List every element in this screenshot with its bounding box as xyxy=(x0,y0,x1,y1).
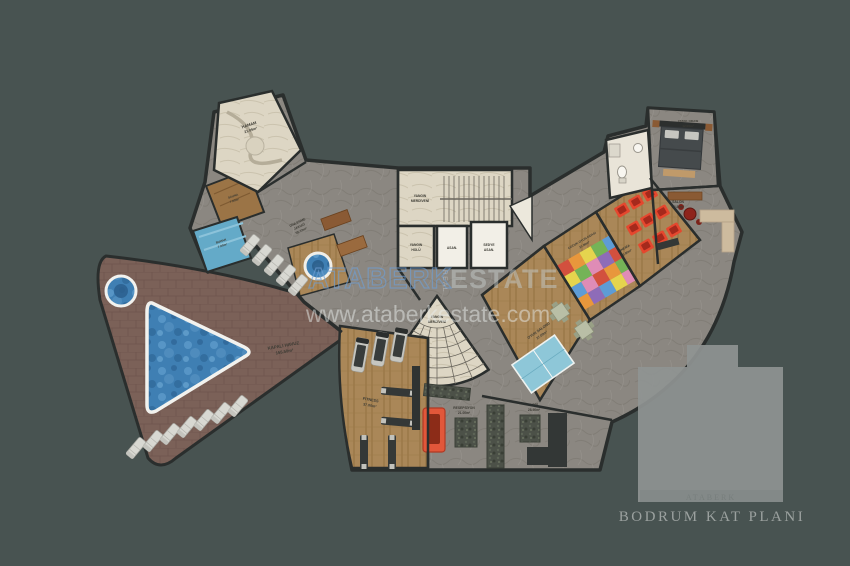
title-block: ATABERK BODRUM KAT PLANI xyxy=(619,345,805,525)
label-resepsiyon-name: RESEPSİYON xyxy=(453,406,475,410)
label-lobi-area: 28.90m² xyxy=(528,408,541,412)
floor-plan-canvas: KAPALI HAVUZ 155.50m² SAUNA 7.00m² BUHAR… xyxy=(0,0,850,566)
jacuzzi-center xyxy=(114,284,128,298)
label-fire-hall-1: YANGIN xyxy=(410,243,423,247)
hamam-center-stone xyxy=(246,137,264,155)
sofa-return xyxy=(722,222,734,252)
watermark-brand-secondary: ESTATE xyxy=(450,264,559,294)
sink xyxy=(634,144,643,153)
shower-tray xyxy=(609,144,620,157)
lobby-sofa-vertical xyxy=(548,413,567,467)
room-label-stretcher: SEDYE ASAN. xyxy=(483,243,495,252)
label-fire-top-2: MERDİVENİ xyxy=(411,199,429,203)
toilet xyxy=(618,166,627,178)
round-table xyxy=(684,208,696,220)
sideboard xyxy=(668,192,702,200)
basement-floor-plan: KAPALI HAVUZ 155.50m² SAUNA 7.00m² BUHAR… xyxy=(0,0,850,566)
lobby-planter xyxy=(520,415,540,442)
building-silhouette xyxy=(638,345,783,502)
label-salon-name: SALON xyxy=(672,200,684,204)
watermark-website: www.ataberkestate.com xyxy=(305,301,550,327)
silhouette-logo-caption: ATABERK xyxy=(686,493,736,502)
sofa xyxy=(700,210,734,222)
label-fire-hall-2: HOLÜ xyxy=(411,248,421,252)
apartment-bathroom xyxy=(606,130,652,198)
planter-square xyxy=(455,418,477,447)
watermark-brand-primary: ATABERK xyxy=(308,263,452,295)
lobby-sofa-horizontal xyxy=(527,447,550,465)
fire-hall xyxy=(398,226,434,268)
label-elevator: ASAN. xyxy=(447,246,457,250)
label-stretcher-1: SEDYE xyxy=(483,243,495,247)
planter-long xyxy=(487,405,504,468)
toilet-tank xyxy=(619,178,626,183)
label-fire-top-1: YANGIN xyxy=(414,194,427,198)
apartment-bedroom: YATAK ODASI 12.00m² xyxy=(648,108,718,190)
cable-station xyxy=(412,366,420,430)
reception-desk xyxy=(423,408,445,452)
watermark-brand-vertical: REAL xyxy=(441,270,448,293)
plan-title: BODRUM KAT PLANI xyxy=(619,509,805,525)
fitness-room: FITNESS 37.00m² xyxy=(339,326,428,469)
label-yatak-area: 12.00m² xyxy=(682,124,694,128)
label-yatak-name: YATAK ODASI xyxy=(678,119,699,123)
label-stretcher-2: ASAN. xyxy=(484,248,494,252)
stair-hall xyxy=(398,170,512,226)
label-resepsiyon-area: 21.00m² xyxy=(458,411,471,415)
